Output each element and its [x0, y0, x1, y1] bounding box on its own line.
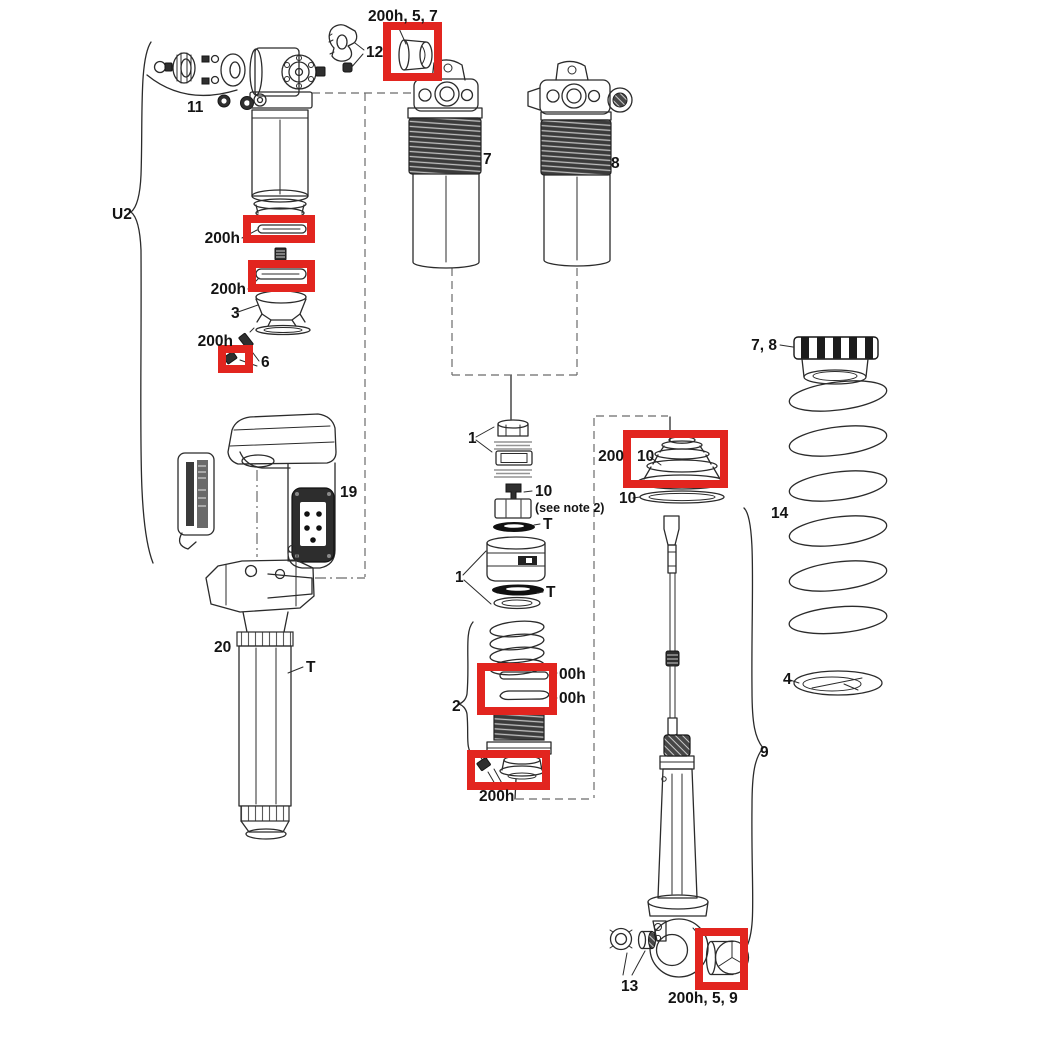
- label-bellows-200: 200: [598, 448, 624, 465]
- label-4: 4: [783, 671, 792, 688]
- label-11: 11: [187, 99, 204, 116]
- label-3: 3: [231, 305, 240, 322]
- label-seal-upper: 200h: [205, 230, 240, 247]
- label-1-lower: 1: [455, 569, 464, 586]
- label-8: 8: [611, 155, 620, 172]
- label-12: 12: [366, 44, 383, 61]
- label-20: 20: [214, 639, 231, 656]
- label-tube-t: T: [306, 659, 316, 676]
- label-7: 7: [483, 151, 492, 168]
- label-6: 6: [261, 354, 270, 371]
- label-cap-200h: 200h: [479, 788, 514, 805]
- label-see-note: (see note 2): [535, 501, 604, 515]
- label-top-bushing: 200h, 5, 7: [368, 8, 438, 25]
- label-bushing-200h59: 200h, 5, 9: [668, 990, 738, 1007]
- label-9: 9: [760, 744, 769, 761]
- label-14: 14: [771, 505, 789, 522]
- label-1-upper: 1: [468, 430, 477, 447]
- label-t-upper: T: [543, 516, 553, 533]
- label-t-lower: T: [546, 584, 556, 601]
- label-7-8: 7, 8: [751, 337, 777, 354]
- label-ring-lower: 00h: [559, 690, 586, 707]
- label-bellows-10: 10: [637, 448, 654, 465]
- label-10-valve: 10: [535, 483, 552, 500]
- diagram-canvas: 200h, 5, 7 12 11 U2 200h 200h 3 200h 6 7…: [0, 0, 1045, 1046]
- label-13: 13: [621, 978, 639, 995]
- label-seal-lower: 200h: [211, 281, 246, 298]
- label-ring-upper: 00h: [559, 666, 586, 683]
- label-19: 19: [340, 484, 358, 501]
- exploded-diagram: 200h, 5, 7 12 11 U2 200h 200h 3 200h 6 7…: [0, 0, 1045, 1046]
- label-u2: U2: [112, 206, 132, 223]
- label-2: 2: [452, 698, 461, 715]
- label-fitting-200h: 200h: [198, 333, 233, 350]
- threaded-stud: [275, 248, 286, 260]
- label-washer-10: 10: [619, 490, 636, 507]
